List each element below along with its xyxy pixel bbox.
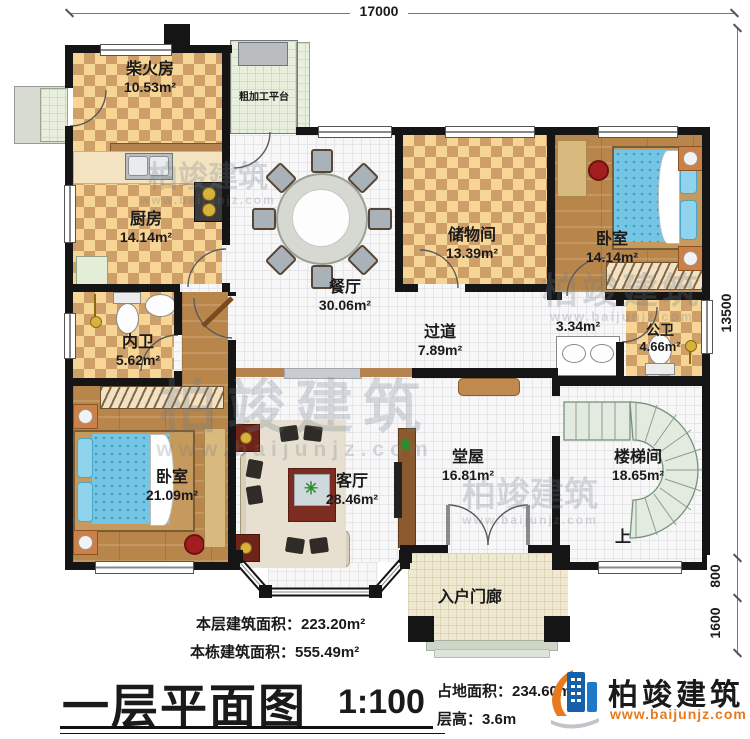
- wall-segment: [616, 300, 624, 306]
- dimension-height: 13500: [718, 283, 734, 343]
- room-name: 储物间: [412, 226, 532, 245]
- wall-segment: [547, 292, 562, 300]
- dimension-width: 17000: [350, 3, 408, 19]
- room-label-bedroom-sw: 卧室 21.09m²: [112, 468, 232, 504]
- room-name: 餐厅: [285, 278, 405, 297]
- plan-scale: 1:100: [338, 683, 425, 722]
- label-wash-area: 3.34m²: [538, 318, 618, 335]
- window: [598, 126, 678, 138]
- room-area: 3.34m²: [538, 318, 618, 335]
- up-text: 上: [608, 528, 638, 547]
- window: [445, 126, 535, 138]
- window: [701, 300, 713, 354]
- room-label-hall: 堂屋 16.81m²: [408, 448, 528, 484]
- dimension-line-right: [737, 28, 738, 655]
- building-area-text: 本栋建筑面积：555.49m²: [190, 641, 359, 662]
- floor-height-text: 层高：3.6m: [437, 708, 516, 729]
- room-label-storage: 储物间 13.39m²: [412, 226, 532, 262]
- room-label-bedroom-ne: 卧室 14.14m²: [552, 230, 672, 266]
- beam: [360, 368, 412, 377]
- room-label-porch: 入户门廊: [400, 588, 540, 607]
- room-label-public-bath: 公卫 4.66m²: [622, 322, 698, 354]
- porch-pillar: [408, 616, 434, 642]
- beam-lintel: [284, 368, 362, 379]
- wall-segment: [228, 292, 236, 296]
- room-area: 16.81m²: [408, 467, 528, 484]
- room-area: 5.62m²: [78, 352, 198, 369]
- porch-step: [434, 649, 550, 658]
- wall-segment: [552, 376, 710, 386]
- chimney-block: [164, 24, 190, 46]
- room-area: 28.46m²: [292, 491, 412, 508]
- room-area: 4.66m²: [622, 339, 698, 355]
- beam: [236, 368, 284, 377]
- room-area: 21.09m²: [112, 487, 232, 504]
- room-area: 14.14m²: [552, 249, 672, 266]
- room-name: 粗加工平台: [228, 92, 300, 104]
- room-name: 过道: [380, 323, 500, 342]
- window: [100, 44, 172, 56]
- wall-segment: [222, 283, 230, 292]
- room-area: 13.39m²: [412, 245, 532, 262]
- room-name: 厨房: [86, 210, 206, 229]
- room-name: 卧室: [112, 468, 232, 487]
- room-label-firewood: 柴火房 10.53m²: [90, 60, 210, 96]
- window: [598, 561, 682, 574]
- room-name: 楼梯间: [578, 448, 698, 467]
- room-label-stairwell: 楼梯间 18.65m²: [578, 448, 698, 484]
- brand-logo-icon: [543, 664, 605, 730]
- wall-segment: [228, 340, 236, 562]
- door-arc: [188, 249, 226, 287]
- window: [318, 126, 392, 138]
- room-label-hallway: 过道 7.89m²: [380, 323, 500, 359]
- room-label-living: 客厅 28.46m²: [292, 472, 412, 508]
- room-area: 7.89m²: [380, 342, 500, 359]
- window: [64, 313, 76, 359]
- floor-plan-page: ✳: [0, 0, 750, 739]
- room-area: 30.06m²: [285, 297, 405, 314]
- room-area: 18.65m²: [578, 467, 698, 484]
- stairs-up-label: 上: [608, 528, 638, 547]
- room-name: 堂屋: [408, 448, 528, 467]
- wall-segment: [547, 135, 555, 300]
- room-label-platform: 粗加工平台: [228, 92, 300, 104]
- wall-segment: [465, 284, 555, 292]
- dimension-1600: 1600: [707, 598, 723, 648]
- wall-segment: [395, 135, 403, 292]
- room-label-private-bath: 内卫 5.62m²: [78, 333, 198, 369]
- window: [64, 185, 76, 243]
- room-name: 柴火房: [90, 60, 210, 79]
- wall-segment: [560, 545, 570, 569]
- wall-segment: [65, 284, 180, 292]
- floor-area-text: 本层建筑面积：223.20m²: [196, 613, 365, 634]
- brand-website: www.baijunjz.com: [610, 706, 747, 722]
- wall-segment: [65, 45, 73, 88]
- room-area: 10.53m²: [90, 79, 210, 96]
- dimension-800: 800: [707, 555, 723, 597]
- room-name: 客厅: [292, 472, 412, 491]
- wall-segment: [222, 45, 230, 245]
- room-label-kitchen: 厨房 14.14m²: [86, 210, 206, 246]
- wall-segment: [605, 292, 710, 300]
- title-underline: [60, 726, 433, 729]
- door-leaf: [203, 298, 232, 326]
- room-name: 卧室: [552, 230, 672, 249]
- door-arc: [234, 132, 270, 168]
- title-underline-thin: [60, 733, 445, 734]
- wall-segment: [412, 368, 558, 378]
- window: [95, 561, 194, 574]
- wall-segment: [65, 378, 182, 386]
- door-arc: [488, 505, 528, 545]
- room-name: 入户门廊: [400, 588, 540, 607]
- room-area: 14.14m²: [86, 229, 206, 246]
- porch-pillar: [544, 616, 570, 642]
- wall-segment: [552, 436, 560, 562]
- wall-segment: [400, 545, 410, 569]
- wall-segment: [552, 386, 560, 396]
- door-arc: [448, 505, 488, 545]
- wall-segment: [408, 545, 448, 553]
- room-label-dining: 餐厅 30.06m²: [285, 278, 405, 314]
- room-name: 内卫: [78, 333, 198, 352]
- wall-segment: [174, 292, 182, 335]
- room-name: 公卫: [622, 322, 698, 339]
